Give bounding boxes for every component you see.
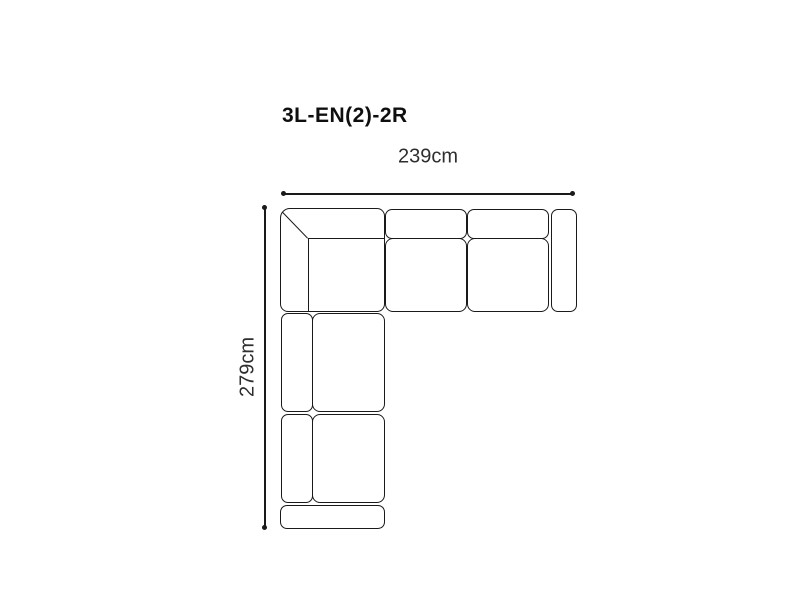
end-section xyxy=(280,505,385,529)
width-dimension-label: 239cm xyxy=(398,146,458,169)
back-cushion xyxy=(281,313,313,412)
seat-cushion-2 xyxy=(467,209,549,312)
back-cushion xyxy=(281,414,313,503)
back-cushion xyxy=(467,209,549,239)
corner-section xyxy=(280,208,385,312)
chaise-cushion-2 xyxy=(281,414,385,503)
height-dimension-label: 279cm xyxy=(237,337,260,397)
corner-backrest-line xyxy=(308,238,309,312)
right-armrest xyxy=(551,209,577,312)
seat-cushion xyxy=(467,238,549,313)
width-dimension-line xyxy=(283,193,573,195)
dimension-endpoint-dot xyxy=(281,191,286,196)
configuration-title: 3L-EN(2)-2R xyxy=(282,104,408,128)
dimension-endpoint-dot xyxy=(262,205,267,210)
height-dimension-line xyxy=(264,207,266,528)
seat-cushion-1 xyxy=(385,209,467,312)
seat-cushion xyxy=(312,313,386,412)
seat-cushion xyxy=(312,414,386,503)
chaise-cushion-1 xyxy=(281,313,385,412)
dimension-endpoint-dot xyxy=(262,525,267,530)
back-cushion xyxy=(385,209,467,239)
corner-miter-line xyxy=(282,212,308,239)
seat-cushion xyxy=(385,238,467,313)
dimension-endpoint-dot xyxy=(570,191,575,196)
corner-backrest-line xyxy=(308,238,385,239)
sofa-dimension-diagram: 3L-EN(2)-2R 239cm 279cm xyxy=(0,0,800,600)
